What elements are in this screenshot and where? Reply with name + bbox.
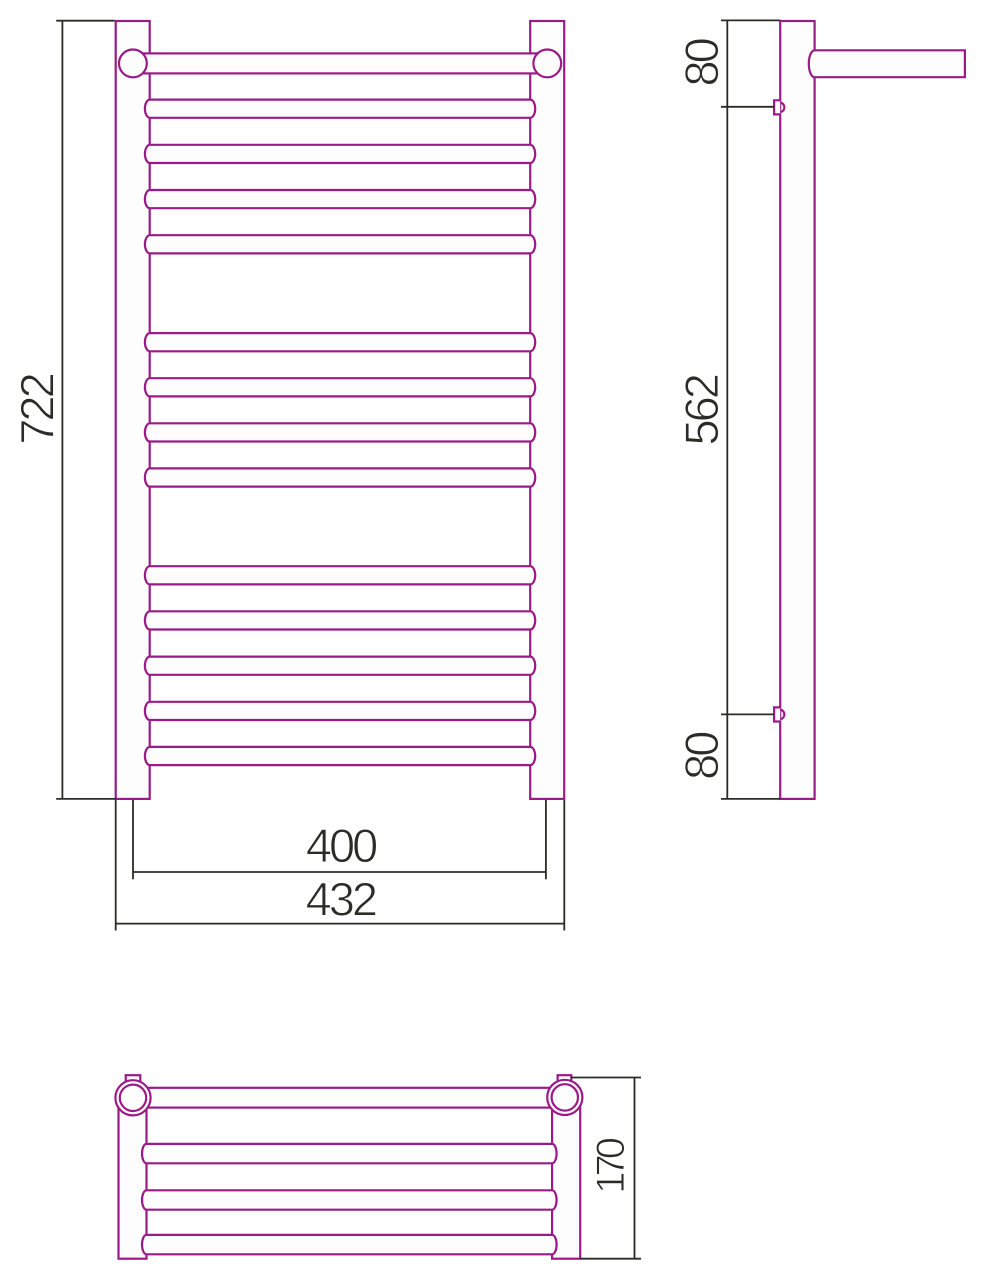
- svg-text:170: 170: [589, 1138, 633, 1193]
- svg-text:722: 722: [11, 374, 64, 444]
- svg-text:562: 562: [675, 375, 728, 445]
- svg-text:432: 432: [306, 873, 376, 926]
- svg-text:80: 80: [675, 38, 728, 86]
- svg-text:400: 400: [306, 819, 377, 872]
- svg-text:80: 80: [675, 732, 728, 780]
